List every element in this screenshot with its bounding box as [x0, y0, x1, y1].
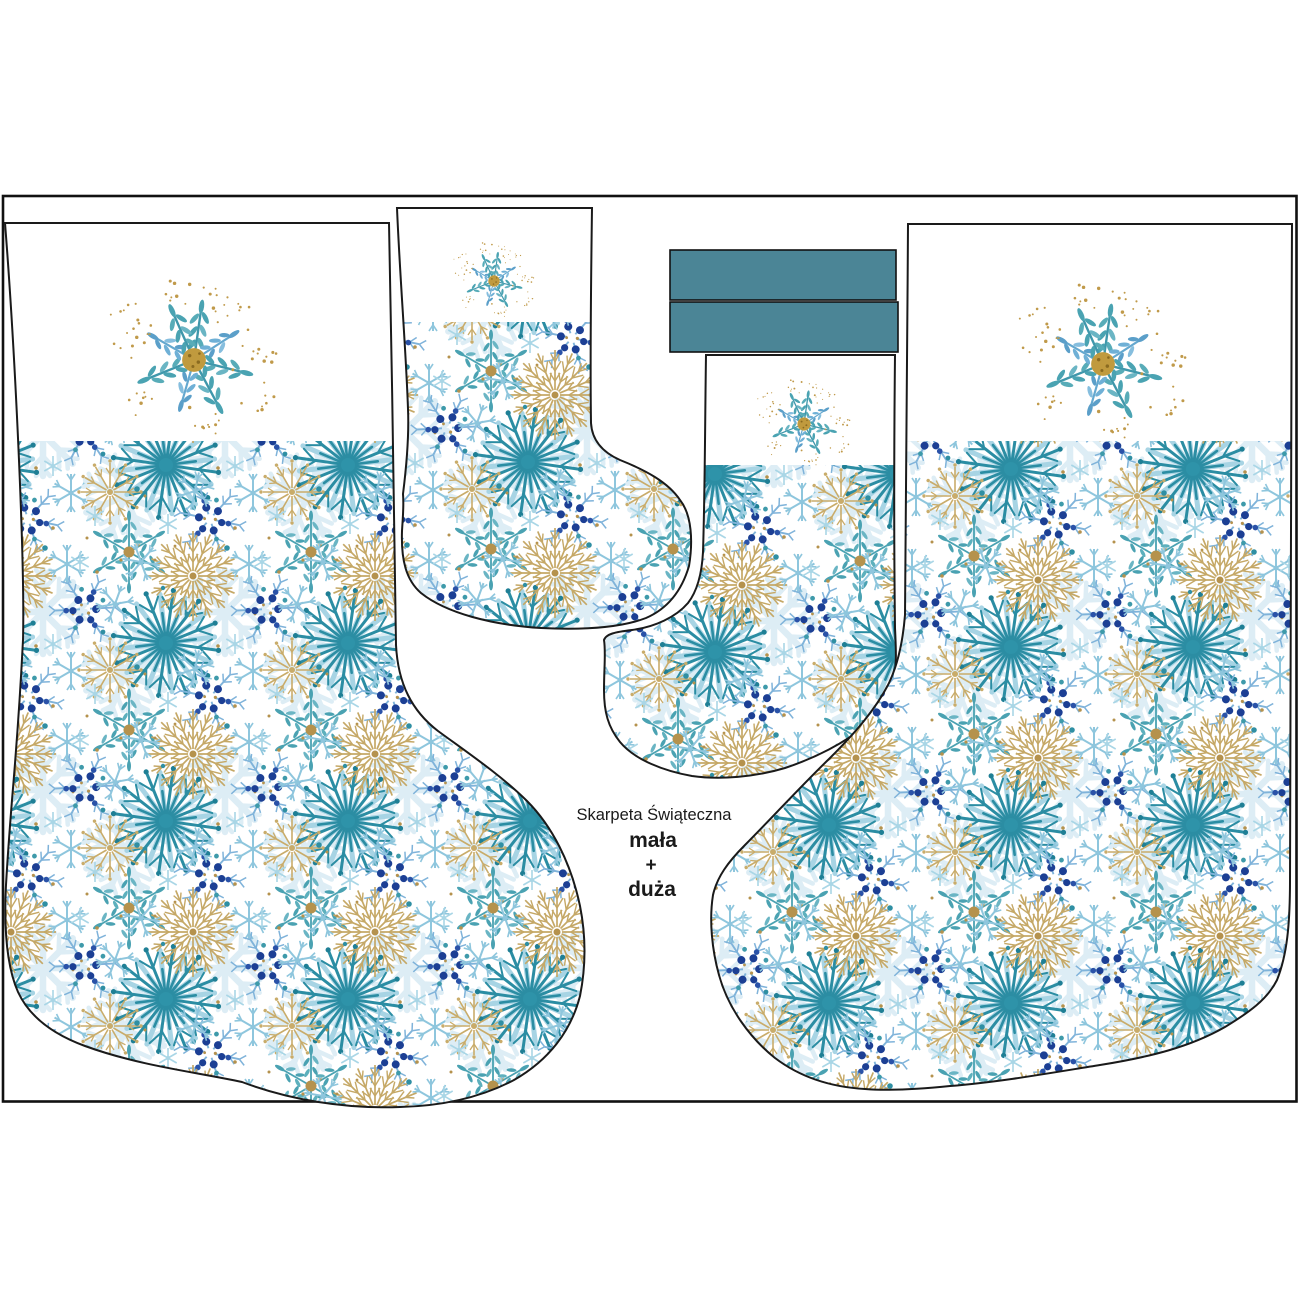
svg-text:duża: duża	[628, 878, 676, 901]
svg-text:Skarpeta Świąteczna: Skarpeta Świąteczna	[576, 805, 732, 824]
svg-text:+: +	[645, 855, 656, 876]
svg-text:mała: mała	[629, 829, 677, 852]
